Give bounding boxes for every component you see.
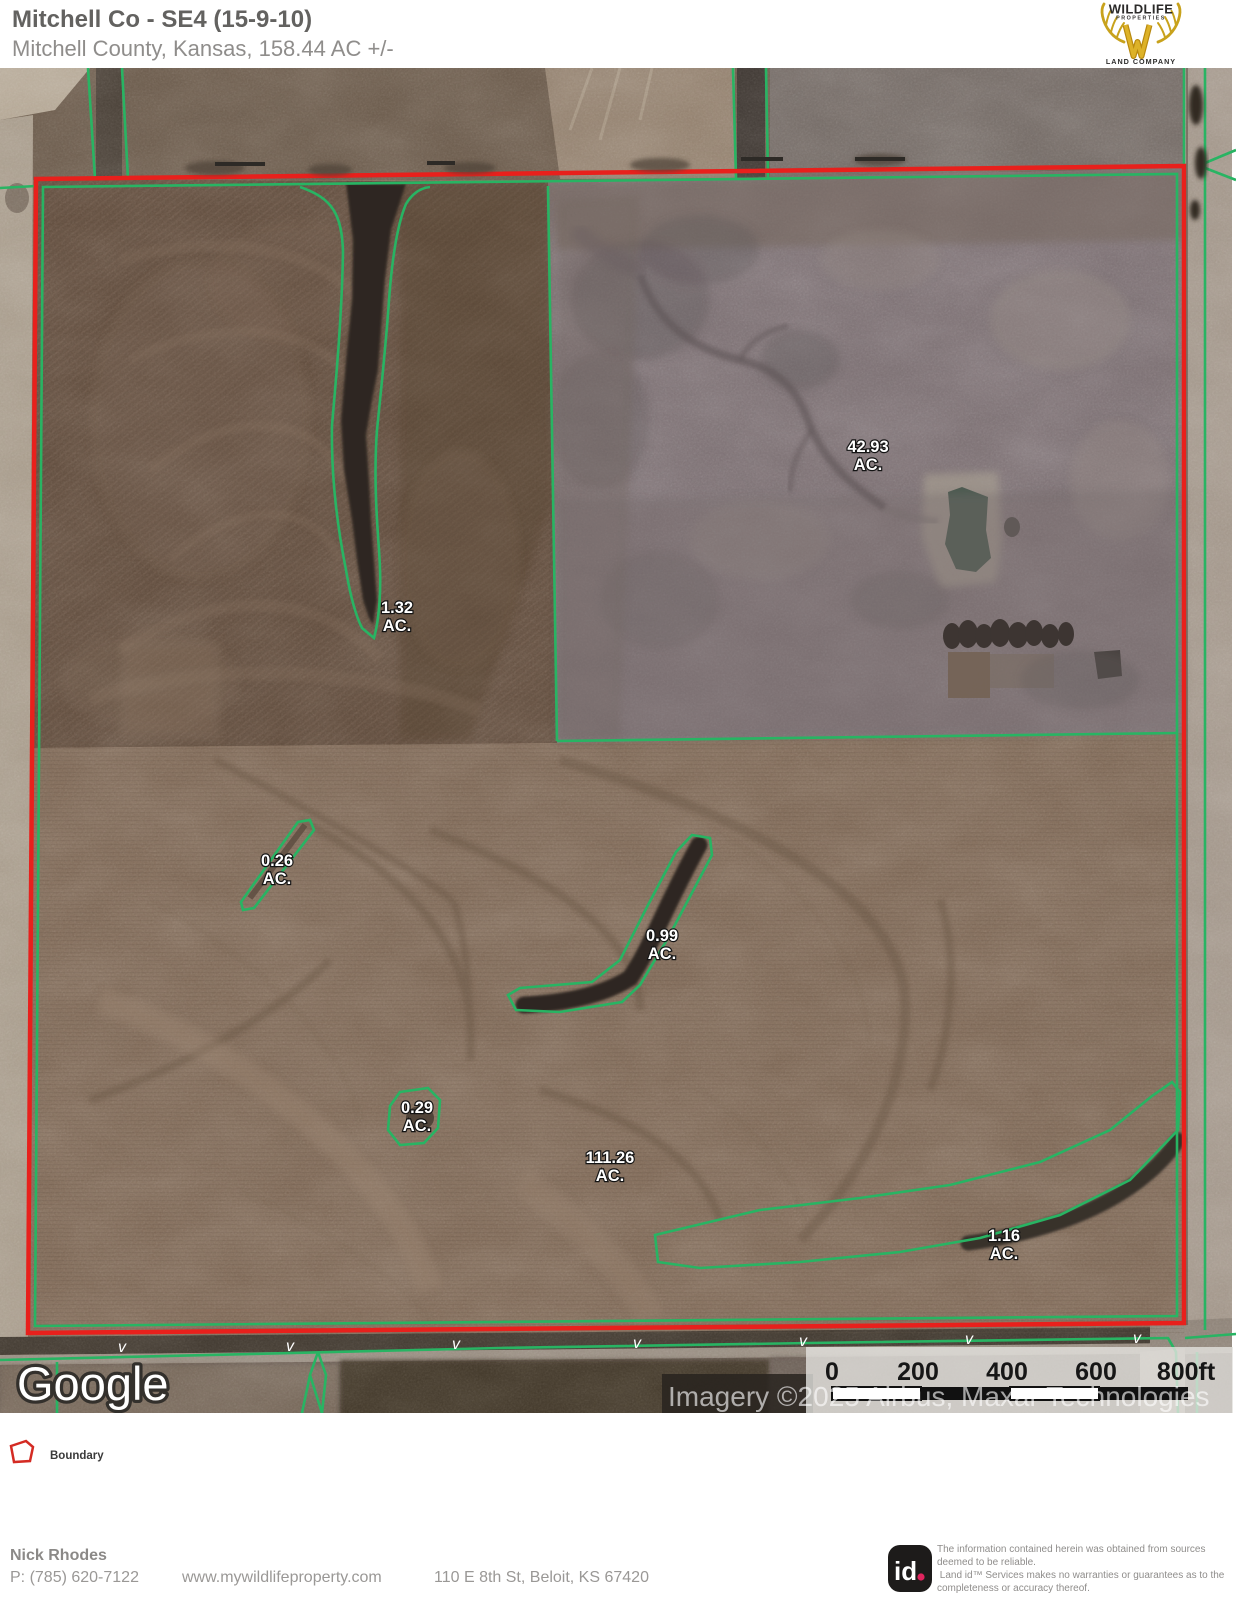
svg-text:id: id: [894, 1556, 917, 1586]
svg-text:AC.: AC.: [854, 456, 882, 474]
svg-text:Boundary: Boundary: [50, 1450, 104, 1462]
svg-text:v: v: [633, 1335, 642, 1352]
svg-text:AC.: AC.: [403, 1117, 431, 1135]
svg-text:AC.: AC.: [383, 617, 411, 635]
svg-text:AC.: AC.: [263, 870, 291, 888]
svg-text:0.26: 0.26: [261, 852, 293, 870]
svg-text:AC.: AC.: [596, 1167, 624, 1185]
svg-text:Imagery ©2025 Airbus, Maxar Te: Imagery ©2025 Airbus, Maxar Technologies: [668, 1381, 1210, 1412]
svg-text:v: v: [1133, 1330, 1142, 1347]
svg-text:42.93: 42.93: [847, 438, 888, 456]
svg-text:PROPERTIES: PROPERTIES: [1116, 16, 1166, 22]
svg-text:WILDLIFE: WILDLIFE: [1109, 2, 1174, 17]
svg-text:LAND COMPANY: LAND COMPANY: [1106, 57, 1176, 66]
svg-text:v: v: [965, 1331, 974, 1348]
svg-text:0.99: 0.99: [646, 927, 678, 945]
svg-text:v: v: [118, 1339, 127, 1356]
svg-text:1.32: 1.32: [381, 599, 413, 617]
svg-text:AC.: AC.: [990, 1245, 1018, 1263]
svg-text:1.16: 1.16: [988, 1227, 1020, 1245]
svg-text:Google: Google: [17, 1357, 169, 1410]
svg-text:AC.: AC.: [648, 945, 676, 963]
svg-text:v: v: [286, 1338, 295, 1355]
svg-text:111.26: 111.26: [586, 1149, 635, 1167]
svg-text:v: v: [452, 1336, 461, 1353]
svg-text:0.29: 0.29: [401, 1099, 433, 1117]
